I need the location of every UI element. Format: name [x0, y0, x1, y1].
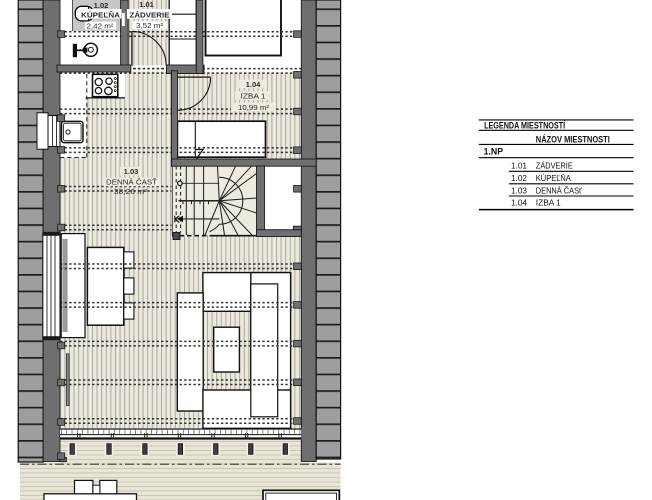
svg-text:1.02: 1.02 — [511, 174, 527, 183]
svg-text:1.04: 1.04 — [246, 80, 262, 89]
svg-text:1.04: 1.04 — [511, 199, 527, 208]
svg-text:NÁZOV MIESTNOSTI: NÁZOV MIESTNOSTI — [536, 134, 610, 144]
svg-text:KÚPEĽŇA: KÚPEĽŇA — [81, 10, 121, 19]
svg-text:3,52 m²: 3,52 m² — [136, 21, 164, 30]
svg-text:1.NP: 1.NP — [484, 147, 504, 157]
svg-text:ZÁDVERIE: ZÁDVERIE — [130, 11, 170, 20]
svg-text:1.03: 1.03 — [124, 167, 139, 176]
svg-text:2,42 m²: 2,42 m² — [87, 21, 115, 30]
svg-text:1.02: 1.02 — [94, 1, 109, 10]
svg-text:LEGENDA MIESTNOSTÍ: LEGENDA MIESTNOSTÍ — [484, 120, 565, 130]
svg-text:KÚPEĽŇA: KÚPEĽŇA — [536, 173, 571, 183]
svg-text:DENNÁ ČASŤ: DENNÁ ČASŤ — [106, 178, 157, 187]
svg-text:1.03: 1.03 — [511, 186, 527, 195]
svg-text:10,99 m²: 10,99 m² — [238, 103, 270, 112]
svg-text:1.01: 1.01 — [139, 0, 155, 9]
svg-text:DENNÁ ČASť: DENNÁ ČASť — [536, 185, 583, 195]
svg-text:IZBA 1: IZBA 1 — [536, 199, 561, 208]
svg-text:IZBA 1: IZBA 1 — [241, 91, 266, 100]
svg-text:ZÁDVERIE: ZÁDVERIE — [536, 161, 573, 171]
svg-text:1.01: 1.01 — [511, 162, 527, 171]
